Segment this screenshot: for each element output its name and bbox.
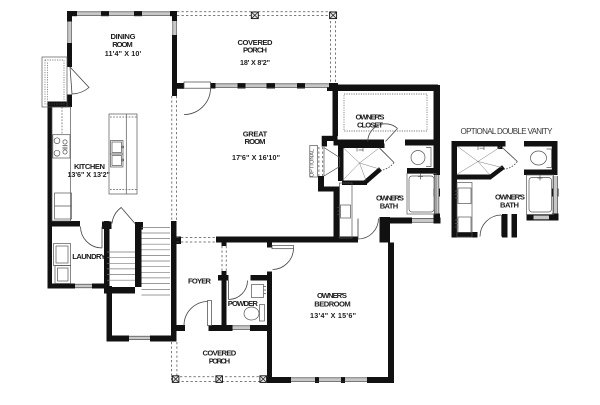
svg-text:PORCH: PORCH xyxy=(243,46,267,55)
svg-text:PORCH: PORCH xyxy=(209,356,230,365)
svg-text:POWDER: POWDER xyxy=(228,299,259,308)
svg-text:OPTIONAL: OPTIONAL xyxy=(310,149,316,177)
svg-text:LAUNDRY: LAUNDRY xyxy=(72,252,106,261)
svg-text:ROOM: ROOM xyxy=(112,40,133,49)
svg-text:11'4" X 10': 11'4" X 10' xyxy=(105,49,142,58)
svg-text:BATH: BATH xyxy=(500,200,519,209)
svg-text:CLOSET: CLOSET xyxy=(357,121,383,130)
svg-text:OPTIONAL DOUBLE VANITY: OPTIONAL DOUBLE VANITY xyxy=(461,127,554,136)
svg-text:BEDROOM: BEDROOM xyxy=(314,300,351,309)
svg-text:17'6" X 16'10": 17'6" X 16'10" xyxy=(232,153,280,162)
svg-text:18' X 8'2": 18' X 8'2" xyxy=(240,58,270,67)
svg-text:13'4" X 15'6": 13'4" X 15'6" xyxy=(310,311,356,320)
svg-text:13'6" X 13'2": 13'6" X 13'2" xyxy=(67,170,110,179)
svg-text:BATH: BATH xyxy=(380,201,399,210)
svg-text:ROOM: ROOM xyxy=(245,137,266,146)
svg-text:FOYER: FOYER xyxy=(188,276,212,285)
